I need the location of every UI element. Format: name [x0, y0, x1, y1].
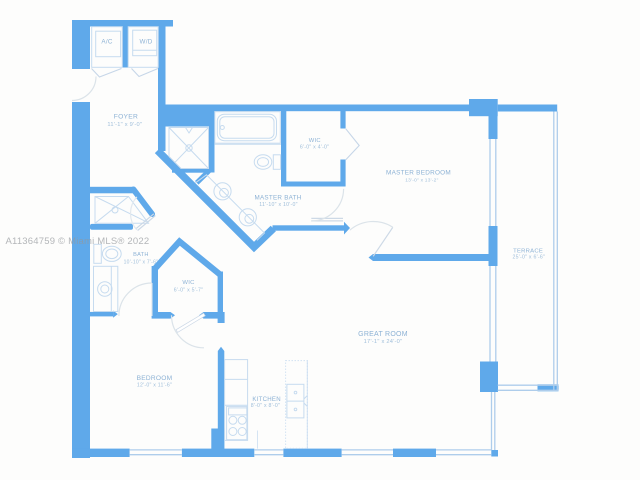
svg-text:12'-0" x 11'-6": 12'-0" x 11'-6"	[137, 382, 172, 388]
svg-text:17'-1" x 24'-0": 17'-1" x 24'-0"	[364, 339, 403, 345]
svg-text:A11364759 © Miami MLS® 2022: A11364759 © Miami MLS® 2022	[6, 236, 150, 247]
svg-text:11'-10" x 10'-0": 11'-10" x 10'-0"	[259, 202, 297, 208]
svg-text:FOYER: FOYER	[114, 114, 138, 121]
svg-text:KITCHEN: KITCHEN	[252, 396, 281, 403]
svg-text:11'-1" x 9'-0": 11'-1" x 9'-0"	[107, 122, 142, 128]
svg-text:WIC: WIC	[182, 280, 195, 286]
svg-text:13'-0" x 13'-2": 13'-0" x 13'-2"	[405, 178, 438, 184]
svg-text:MASTER BATH: MASTER BATH	[254, 195, 301, 202]
svg-text:BATH: BATH	[133, 252, 149, 258]
svg-text:W/D: W/D	[140, 39, 153, 46]
svg-text:25'-0" x 6'-6": 25'-0" x 6'-6"	[513, 255, 546, 261]
svg-text:BEDROOM: BEDROOM	[137, 375, 173, 382]
svg-text:TERRACE: TERRACE	[513, 248, 543, 254]
svg-text:WIC: WIC	[309, 138, 321, 144]
svg-text:6'-0" x 4'-0": 6'-0" x 4'-0"	[300, 145, 329, 151]
svg-text:6'-0" x 5'-7": 6'-0" x 5'-7"	[174, 287, 203, 293]
svg-text:8'-0" x 8'-0": 8'-0" x 8'-0"	[251, 403, 280, 409]
svg-text:GREAT ROOM: GREAT ROOM	[358, 331, 408, 338]
svg-text:10'-10" x 7'-6": 10'-10" x 7'-6"	[124, 259, 159, 265]
svg-text:MASTER BEDROOM: MASTER BEDROOM	[386, 170, 451, 177]
svg-text:A/C: A/C	[101, 39, 112, 46]
